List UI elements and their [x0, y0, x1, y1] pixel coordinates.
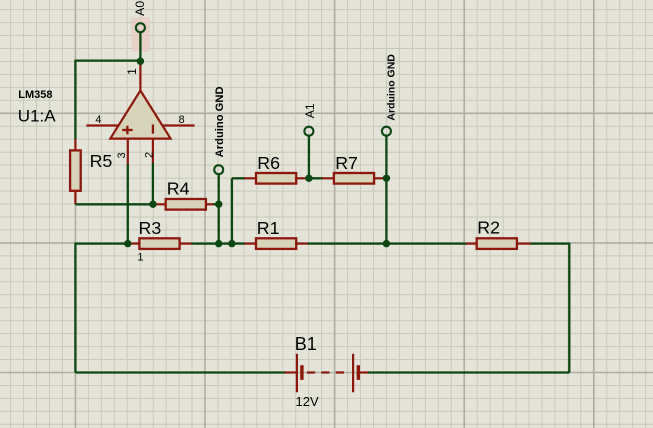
- svg-text:A1: A1: [303, 103, 317, 118]
- svg-text:U1:A: U1:A: [18, 106, 56, 125]
- svg-text:1: 1: [137, 251, 143, 263]
- svg-text:A0: A0: [133, 1, 147, 16]
- svg-text:R7: R7: [335, 153, 358, 173]
- svg-text:4: 4: [95, 114, 101, 126]
- svg-text:2: 2: [144, 152, 156, 158]
- svg-text:R3: R3: [139, 218, 162, 238]
- svg-text:1: 1: [125, 68, 139, 75]
- svg-text:Arduino GND: Arduino GND: [214, 86, 226, 157]
- svg-text:12V: 12V: [296, 394, 319, 409]
- svg-text:R5: R5: [90, 151, 113, 171]
- svg-text:8: 8: [179, 114, 185, 126]
- svg-text:B1: B1: [295, 334, 317, 354]
- svg-text:R4: R4: [167, 179, 190, 199]
- svg-text:LM358: LM358: [18, 89, 52, 101]
- svg-text:3: 3: [116, 152, 128, 158]
- svg-text:R2: R2: [477, 218, 500, 238]
- svg-text:R6: R6: [257, 153, 280, 173]
- svg-text:Arduino GND: Arduino GND: [385, 54, 397, 121]
- svg-text:R1: R1: [257, 218, 280, 238]
